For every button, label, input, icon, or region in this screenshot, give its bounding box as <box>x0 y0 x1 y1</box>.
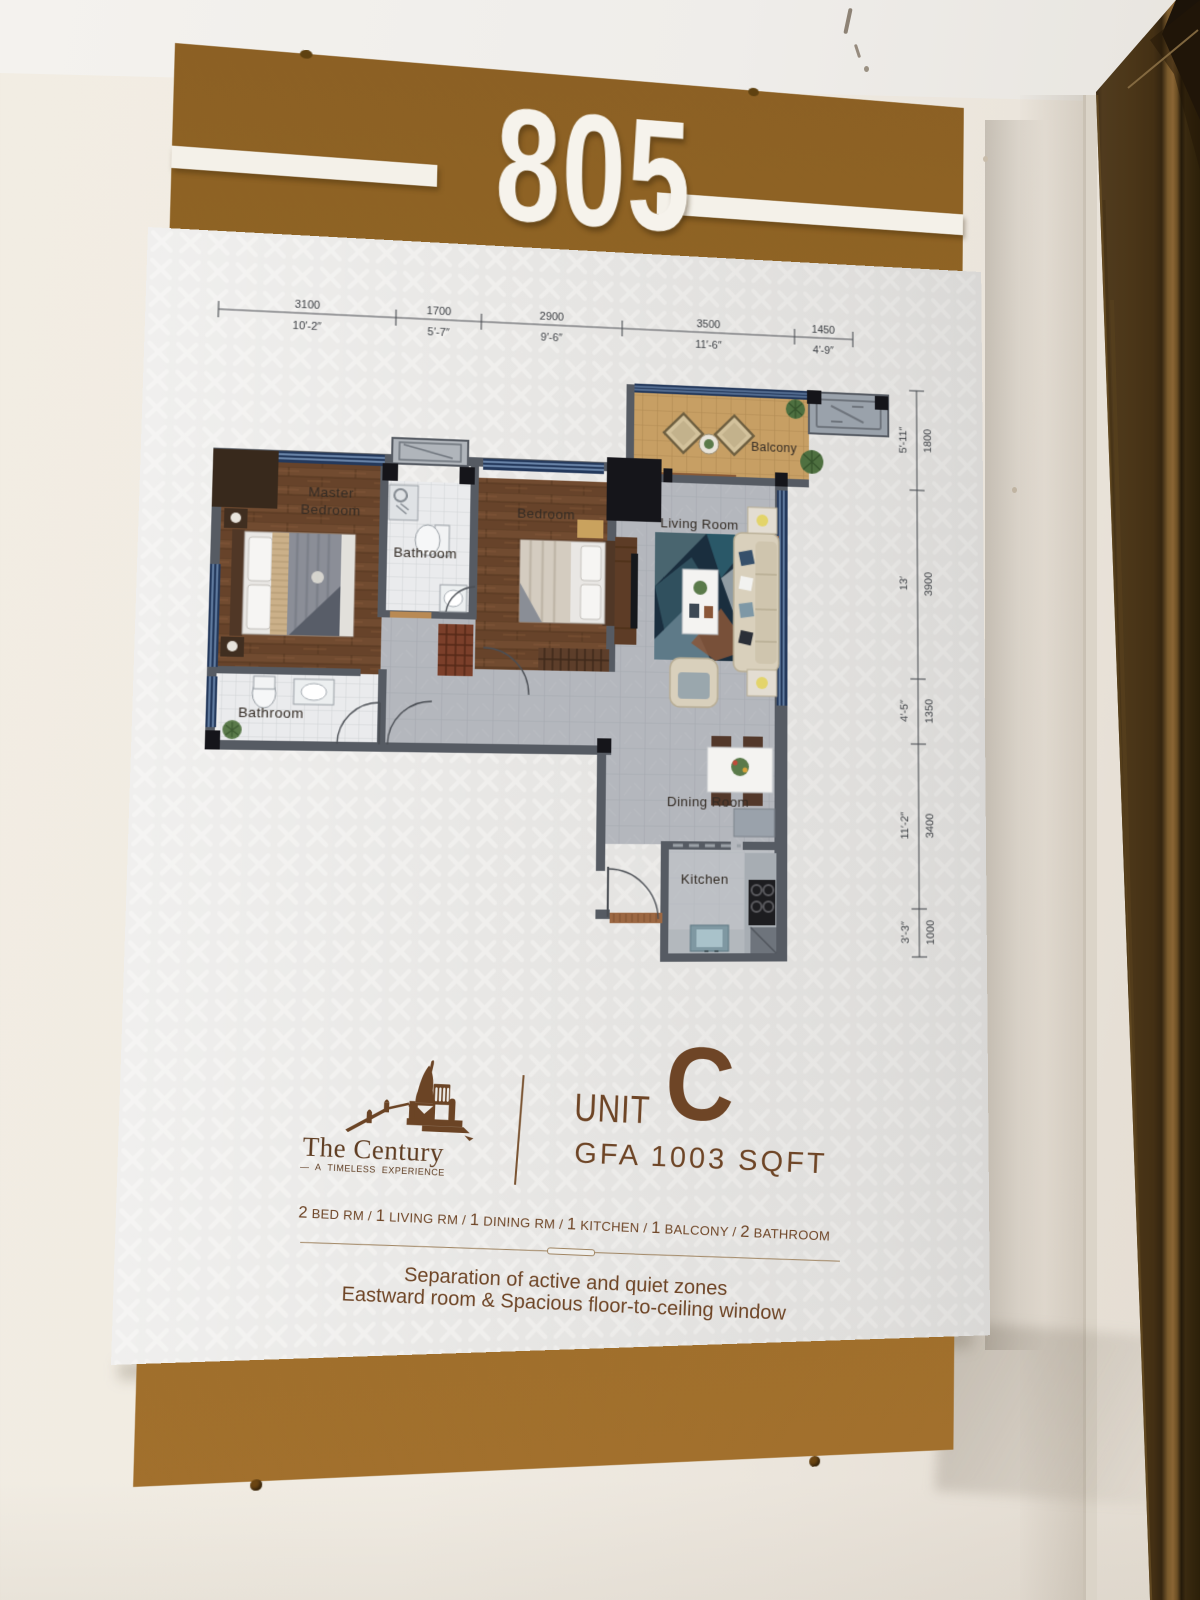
svg-text:5′-11″: 5′-11″ <box>898 427 909 454</box>
svg-text:1000: 1000 <box>925 920 936 945</box>
svg-text:1450: 1450 <box>812 324 835 336</box>
svg-text:4′-9″: 4′-9″ <box>813 345 834 357</box>
svg-text:9′-6″: 9′-6″ <box>541 332 563 344</box>
svg-text:Bedroom: Bedroom <box>300 501 360 519</box>
svg-text:10′-2″: 10′-2″ <box>292 320 321 333</box>
svg-text:2900: 2900 <box>539 311 564 324</box>
svg-text:Kitchen: Kitchen <box>681 871 729 887</box>
svg-text:Master: Master <box>308 483 354 500</box>
svg-text:1800: 1800 <box>923 429 934 453</box>
svg-text:3100: 3100 <box>295 299 321 312</box>
svg-text:1350: 1350 <box>924 699 935 724</box>
svg-text:3500: 3500 <box>697 319 721 331</box>
svg-text:Bedroom: Bedroom <box>517 505 575 522</box>
svg-text:Bathroom: Bathroom <box>393 544 457 562</box>
svg-text:11′-6″: 11′-6″ <box>695 339 721 352</box>
svg-text:3′-3″: 3′-3″ <box>900 921 911 943</box>
svg-text:3900: 3900 <box>923 572 934 596</box>
svg-text:4′-5″: 4′-5″ <box>899 700 910 722</box>
svg-text:11′-2″: 11′-2″ <box>900 812 911 840</box>
svg-text:Living Room: Living Room <box>660 515 738 533</box>
svg-text:1700: 1700 <box>426 305 451 318</box>
svg-text:3400: 3400 <box>925 813 936 838</box>
svg-text:Dining Room: Dining Room <box>667 793 749 810</box>
svg-text:Bathroom: Bathroom <box>238 704 304 721</box>
svg-text:13′: 13′ <box>899 576 910 590</box>
svg-text:Balcony: Balcony <box>751 439 797 455</box>
svg-text:5′-7″: 5′-7″ <box>427 327 449 340</box>
